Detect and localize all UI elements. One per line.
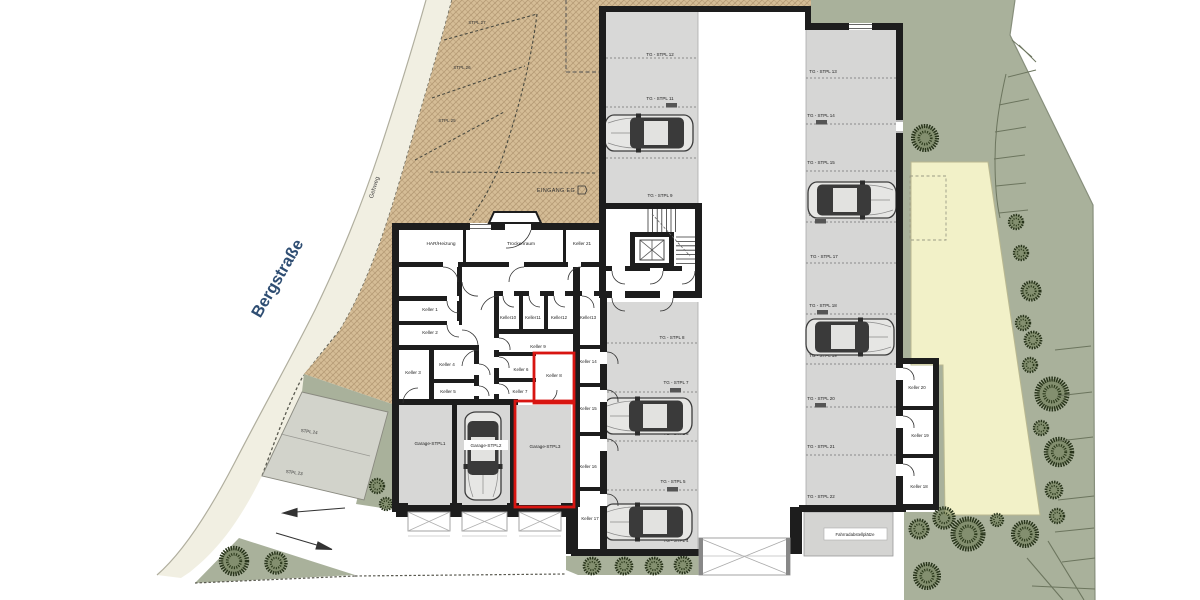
svg-text:STPL 25: STPL 25 xyxy=(438,118,456,123)
svg-text:Keller 9: Keller 9 xyxy=(530,344,546,349)
svg-text:Keller10: Keller10 xyxy=(500,315,517,320)
svg-text:Garage-STPL1: Garage-STPL1 xyxy=(415,441,446,446)
svg-text:TG - STPL 21: TG - STPL 21 xyxy=(807,444,835,449)
svg-text:Keller 6: Keller 6 xyxy=(514,367,529,372)
svg-text:TG - STPL 7: TG - STPL 7 xyxy=(663,380,689,385)
svg-text:TG - STPL 12: TG - STPL 12 xyxy=(646,52,674,57)
svg-text:Keller 2: Keller 2 xyxy=(422,330,438,335)
svg-text:Trockenraum: Trockenraum xyxy=(507,241,535,247)
svg-text:Keller 17: Keller 17 xyxy=(581,516,599,521)
svg-text:Keller 20: Keller 20 xyxy=(908,385,926,390)
svg-text:TG - STPL 11: TG - STPL 11 xyxy=(646,96,674,101)
svg-text:TG - STPL 20: TG - STPL 20 xyxy=(807,396,835,401)
svg-text:Garage-STPL2: Garage-STPL2 xyxy=(471,443,502,448)
svg-text:Keller 4: Keller 4 xyxy=(439,362,455,367)
svg-text:Garage-STPL3: Garage-STPL3 xyxy=(530,444,561,449)
svg-text:Fahrradabstellplätze: Fahrradabstellplätze xyxy=(836,532,876,537)
svg-text:Keller 7: Keller 7 xyxy=(513,389,528,394)
svg-text:Keller 5: Keller 5 xyxy=(440,389,456,394)
svg-text:EINGANG EG: EINGANG EG xyxy=(537,188,575,194)
svg-text:Keller 14: Keller 14 xyxy=(579,359,597,364)
svg-text:Keller 8: Keller 8 xyxy=(546,373,562,378)
svg-text:TG - STPL 22: TG - STPL 22 xyxy=(807,494,835,499)
svg-text:Keller13: Keller13 xyxy=(580,315,597,320)
svg-text:Keller 18: Keller 18 xyxy=(910,484,928,489)
svg-text:TG - STPL 13: TG - STPL 13 xyxy=(809,69,837,74)
svg-text:TG - STPL 8: TG - STPL 8 xyxy=(659,335,685,340)
svg-text:Keller 21: Keller 21 xyxy=(573,241,592,246)
svg-text:TG - STPL 17: TG - STPL 17 xyxy=(810,254,838,259)
svg-text:Keller 16: Keller 16 xyxy=(579,464,597,469)
svg-text:TG - STPL 14: TG - STPL 14 xyxy=(807,113,835,118)
svg-text:TG - STPL 18: TG - STPL 18 xyxy=(809,303,837,308)
svg-text:STPL 27: STPL 27 xyxy=(468,20,486,25)
svg-text:TG - STPL 9: TG - STPL 9 xyxy=(647,193,673,198)
svg-text:Keller 3: Keller 3 xyxy=(405,370,421,375)
svg-text:Keller 1: Keller 1 xyxy=(422,307,438,312)
svg-text:Keller 15: Keller 15 xyxy=(579,406,597,411)
svg-text:TG - STPL 5: TG - STPL 5 xyxy=(660,479,686,484)
svg-text:Keller12: Keller12 xyxy=(551,315,568,320)
svg-text:TG - STPL 15: TG - STPL 15 xyxy=(807,160,835,165)
svg-text:Keller11: Keller11 xyxy=(525,315,541,320)
svg-text:HAR/Heizung: HAR/Heizung xyxy=(426,241,455,247)
svg-text:Keller 19: Keller 19 xyxy=(911,433,929,438)
svg-text:STPL 26: STPL 26 xyxy=(453,65,471,70)
